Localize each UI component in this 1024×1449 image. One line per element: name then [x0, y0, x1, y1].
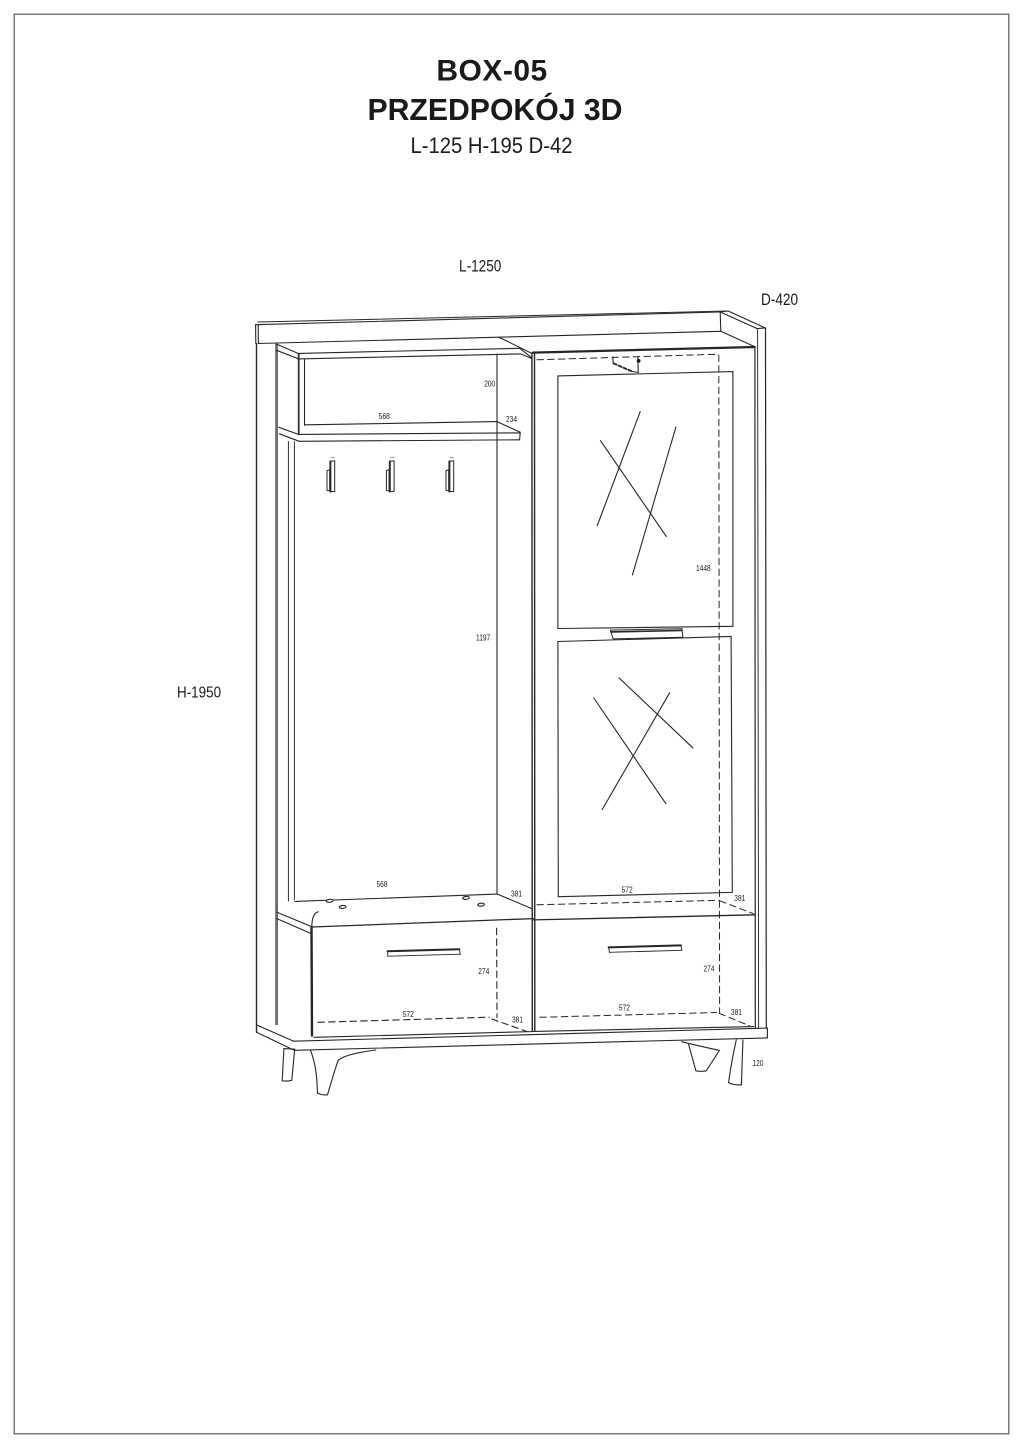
svg-text:568: 568 — [377, 879, 388, 889]
svg-text:234: 234 — [506, 414, 518, 424]
svg-text:274: 274 — [704, 964, 716, 974]
svg-text:BOX-05: BOX-05 — [436, 55, 547, 88]
svg-text:H-1950: H-1950 — [177, 684, 221, 701]
svg-text:572: 572 — [622, 885, 633, 895]
svg-text:PRZEDPOKÓJ 3D: PRZEDPOKÓJ 3D — [368, 93, 623, 127]
svg-text:572: 572 — [619, 1003, 630, 1013]
svg-text:1448: 1448 — [696, 563, 711, 573]
svg-text:120: 120 — [752, 1058, 763, 1068]
svg-text:D-420: D-420 — [761, 291, 798, 309]
svg-text:381: 381 — [734, 893, 745, 903]
svg-text:274: 274 — [478, 966, 490, 976]
svg-text:L-1250: L-1250 — [459, 258, 501, 276]
svg-text:1197: 1197 — [476, 632, 490, 642]
svg-text:572: 572 — [403, 1009, 414, 1019]
svg-text:381: 381 — [511, 889, 522, 899]
svg-text:568: 568 — [379, 411, 390, 421]
svg-text:200: 200 — [484, 379, 495, 389]
svg-text:381: 381 — [731, 1007, 742, 1017]
svg-text:L-125 H-195 D-42: L-125 H-195 D-42 — [411, 133, 573, 158]
svg-text:381: 381 — [512, 1015, 523, 1025]
